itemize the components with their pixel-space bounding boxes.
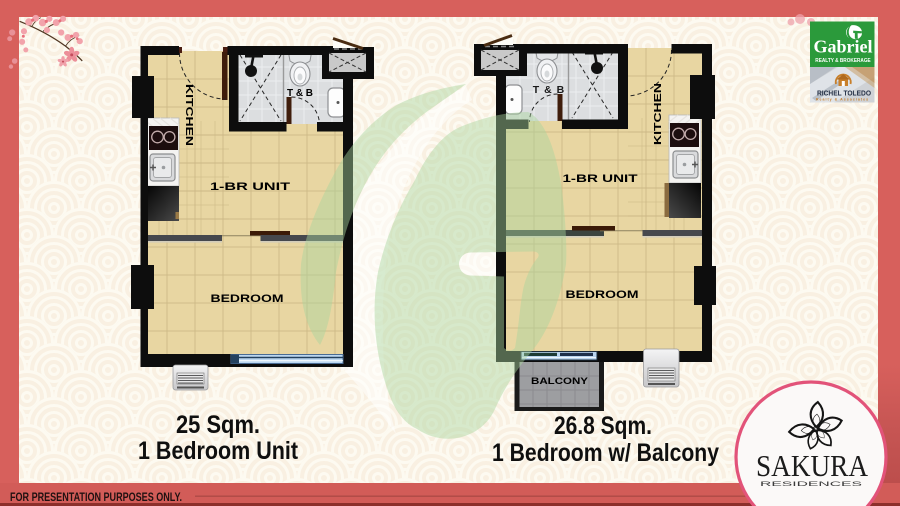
svg-text:BEDROOM: BEDROOM <box>211 293 284 305</box>
svg-text:SAKURA: SAKURA <box>756 448 869 483</box>
svg-text:BEDROOM: BEDROOM <box>566 289 639 301</box>
svg-text:1-BR UNIT: 1-BR UNIT <box>210 181 290 193</box>
svg-text:RESIDENCES: RESIDENCES <box>760 481 863 488</box>
svg-text:1 Bedroom w/ Balcony: 1 Bedroom w/ Balcony <box>492 439 719 467</box>
svg-text:KITCHEN: KITCHEN <box>653 83 664 145</box>
svg-text:RICHEL TOLEDO: RICHEL TOLEDO <box>817 89 871 98</box>
svg-text:KITCHEN: KITCHEN <box>183 84 194 146</box>
svg-text:25 Sqm.: 25 Sqm. <box>176 411 260 439</box>
svg-text:26.8 Sqm.: 26.8 Sqm. <box>554 412 652 440</box>
svg-text:1 Bedroom Unit: 1 Bedroom Unit <box>138 437 299 465</box>
svg-text:Realty & Associates: Realty & Associates <box>816 98 869 102</box>
svg-text:1-BR UNIT: 1-BR UNIT <box>563 173 638 185</box>
svg-text:T & B: T & B <box>533 84 565 96</box>
svg-text:BALCONY: BALCONY <box>531 376 588 386</box>
svg-text:T & B: T & B <box>287 87 313 99</box>
svg-text:Gabriel: Gabriel <box>814 37 873 57</box>
svg-text:REALTY & BROKERAGE: REALTY & BROKERAGE <box>815 58 871 64</box>
svg-text:FOR PRESENTATION PURPOSES ONLY: FOR PRESENTATION PURPOSES ONLY. <box>10 490 182 504</box>
